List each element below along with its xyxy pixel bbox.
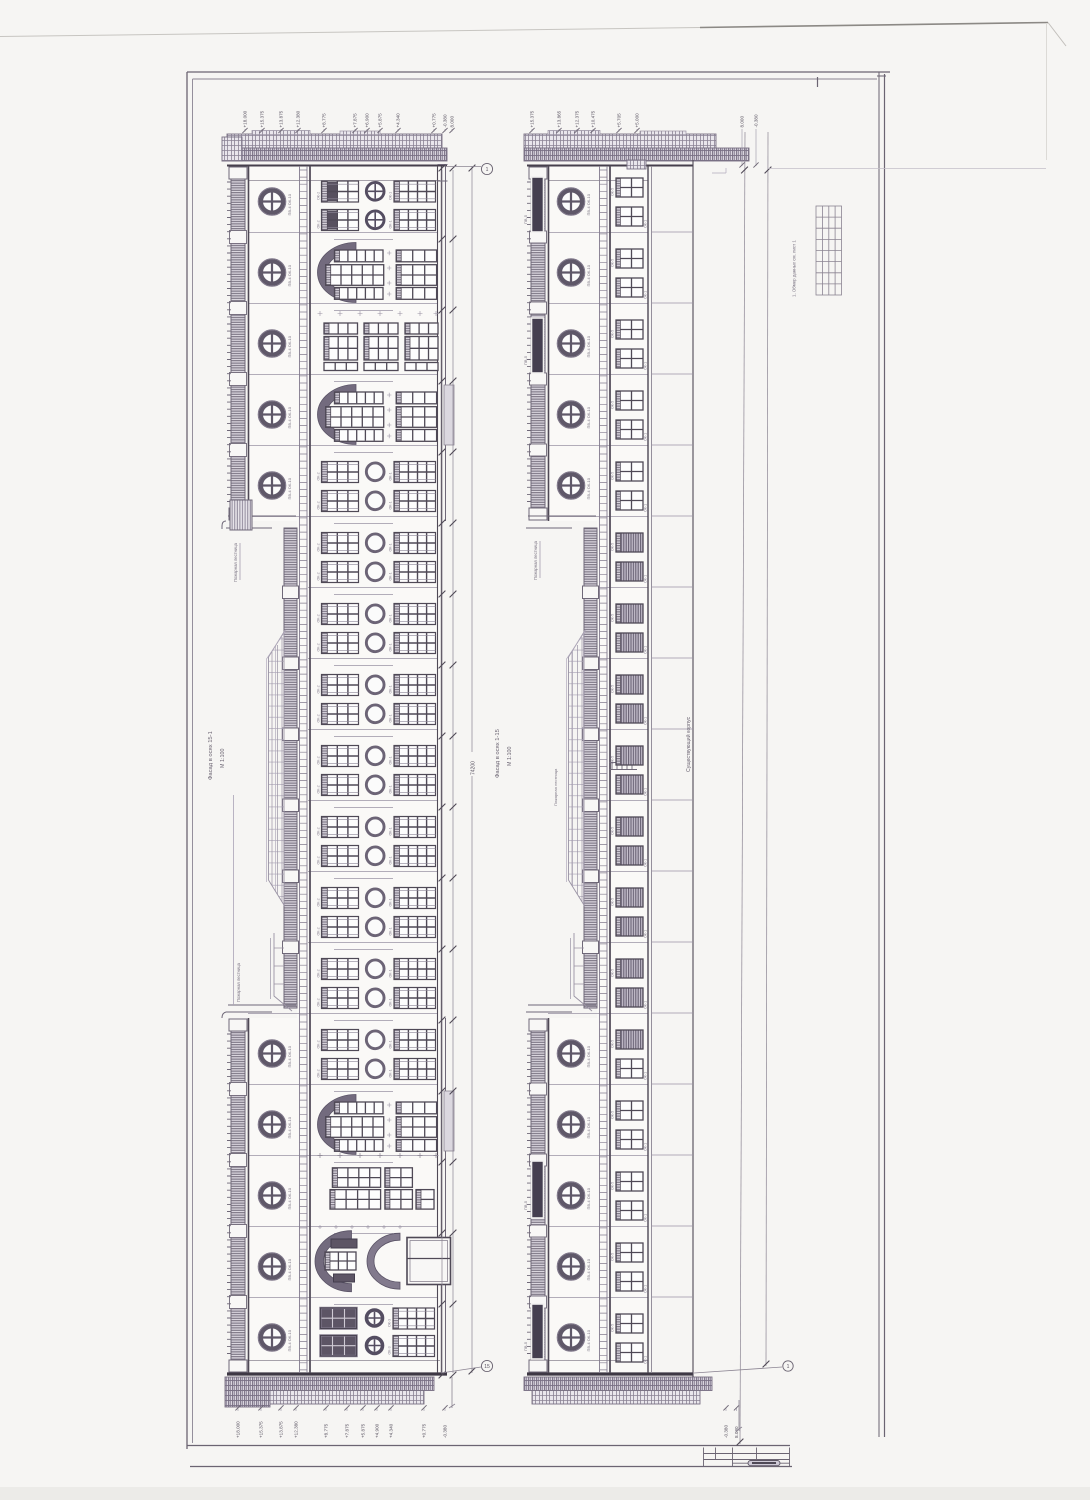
svg-text:ОК-5: ОК-5 (611, 401, 615, 409)
svg-text:М 1:100: М 1:100 (507, 747, 513, 766)
svg-text:ОК-2: ОК-2 (317, 1040, 321, 1048)
svg-text:8.000: 8.000 (450, 116, 455, 128)
svg-text:-0.380: -0.380 (443, 1425, 448, 1438)
svg-text:+5.000: +5.000 (635, 113, 640, 128)
svg-text:+12.375: +12.375 (575, 110, 580, 127)
svg-text:-0.380: -0.380 (443, 114, 448, 127)
svg-text:ОК-1: ОК-1 (389, 856, 393, 864)
svg-text:+13.865: +13.865 (557, 110, 562, 127)
svg-text:+4.340: +4.340 (389, 1423, 394, 1438)
svg-text:ОК-2: ОК-2 (317, 1069, 321, 1077)
svg-text:+5.875: +5.875 (361, 1423, 366, 1438)
svg-text:+4.340: +4.340 (396, 113, 401, 128)
svg-text:ОК-2: ОК-2 (317, 969, 321, 977)
svg-text:ОК-1: ОК-1 (389, 898, 393, 906)
svg-text:ОК-1: ОК-1 (644, 433, 648, 441)
svg-text:ОК-1: ОК-1 (389, 614, 393, 622)
svg-text:ОК-1: ОК-1 (389, 192, 393, 200)
svg-text:ОК-1: ОК-1 (644, 788, 648, 796)
svg-text:ОК-5: ОК-5 (611, 827, 615, 835)
svg-text:+13.875: +13.875 (279, 110, 284, 127)
svg-text:ОК-5: ОК-5 (611, 756, 615, 764)
svg-text:ОК-1: ОК-1 (644, 1143, 648, 1151)
svg-text:74200: 74200 (471, 761, 477, 775)
svg-text:ОК-2: ОК-2 (317, 643, 321, 651)
svg-text:Пожарная лестница: Пожарная лестница (236, 962, 241, 1002)
svg-text:ОК-3: ОК-3 (388, 1319, 392, 1327)
svg-text:ОК-1: ОК-1 (644, 1285, 648, 1293)
svg-text:ОК-1: ОК-1 (644, 930, 648, 938)
svg-text:ПВ-4 ОК-10: ПВ-4 ОК-10 (586, 406, 591, 428)
svg-text:ПВ-4 ОК-10: ПВ-4 ОК-10 (586, 1116, 591, 1138)
svg-text:ОК-1: ОК-1 (644, 504, 648, 512)
svg-text:ПВ-4 ОК-10: ПВ-4 ОК-10 (287, 406, 292, 428)
svg-text:+8.775: +8.775 (322, 113, 327, 128)
svg-text:ОК-2: ОК-2 (317, 998, 321, 1006)
svg-text:ПВ-4 ОК-10: ПВ-4 ОК-10 (287, 1258, 292, 1280)
svg-text:+0.775: +0.775 (432, 113, 437, 128)
svg-text:Фасад в осях 1-15: Фасад в осях 1-15 (495, 729, 501, 778)
svg-text:ПВ-4 ОК-10: ПВ-4 ОК-10 (287, 264, 292, 286)
svg-text:-0.380: -0.380 (754, 114, 759, 127)
svg-text:ПВ-5: ПВ-5 (523, 1200, 528, 1210)
svg-text:+5.875: +5.875 (378, 113, 383, 128)
svg-text:ОК-5: ОК-5 (611, 685, 615, 693)
svg-text:ОК-5: ОК-5 (611, 1040, 615, 1048)
svg-text:ОК-2: ОК-2 (317, 543, 321, 551)
svg-text:ОК-1: ОК-1 (644, 362, 648, 370)
svg-text:Фасад в осях 15-1: Фасад в осях 15-1 (208, 731, 214, 780)
svg-text:ОК-1: ОК-1 (644, 1214, 648, 1222)
svg-text:ОК-5: ОК-5 (611, 330, 615, 338)
svg-text:ПВ-5: ПВ-5 (523, 355, 528, 365)
svg-text:ОК-5: ОК-5 (611, 1182, 615, 1190)
svg-text:+8.775: +8.775 (324, 1423, 329, 1438)
svg-text:ПВ-4 ОК-10: ПВ-4 ОК-10 (287, 335, 292, 357)
svg-text:ОК-1: ОК-1 (644, 1001, 648, 1009)
svg-text:ПВ-4 ОК-10: ПВ-4 ОК-10 (586, 264, 591, 286)
svg-text:ОК-1: ОК-1 (644, 859, 648, 867)
svg-text:ОК-1: ОК-1 (389, 927, 393, 935)
svg-text:ОК-1: ОК-1 (389, 685, 393, 693)
svg-text:+7.875: +7.875 (345, 1423, 350, 1438)
svg-text:15: 15 (484, 1364, 490, 1370)
svg-text:ПВ-4 ОК-10: ПВ-4 ОК-10 (287, 1116, 292, 1138)
svg-text:ОК-1: ОК-1 (389, 969, 393, 977)
svg-text:+12.380: +12.380 (296, 110, 301, 127)
svg-text:ОК-1: ОК-1 (389, 714, 393, 722)
svg-text:ОК-1: ОК-1 (389, 998, 393, 1006)
svg-text:ОК-5: ОК-5 (611, 543, 615, 551)
svg-text:ОК-1: ОК-1 (644, 575, 648, 583)
svg-text:+13.875: +13.875 (279, 1421, 284, 1438)
svg-text:+10.475: +10.475 (591, 110, 596, 127)
svg-text:ОК-2: ОК-2 (317, 756, 321, 764)
svg-text:ОК-5: ОК-5 (611, 259, 615, 267)
svg-text:ОК-1: ОК-1 (389, 572, 393, 580)
svg-text:М 1:100: М 1:100 (220, 749, 226, 768)
svg-text:Пожарная лестница: Пожарная лестница (553, 768, 558, 806)
svg-text:ОК-1: ОК-1 (644, 291, 648, 299)
svg-text:ОК-1: ОК-1 (389, 472, 393, 480)
svg-text:ОК-1: ОК-1 (644, 1356, 648, 1364)
svg-text:ОК-2: ОК-2 (317, 192, 321, 200)
svg-text:+12.380: +12.380 (294, 1421, 299, 1438)
svg-text:ОК-1: ОК-1 (389, 827, 393, 835)
svg-text:+15.375: +15.375 (259, 1421, 264, 1438)
svg-text:ПВ-4 ОК-10: ПВ-4 ОК-10 (287, 1187, 292, 1209)
svg-text:ОК-2: ОК-2 (317, 856, 321, 864)
svg-text:ПВ-4 ОК-10: ПВ-4 ОК-10 (586, 1187, 591, 1209)
svg-text:ОК-1: ОК-1 (389, 220, 393, 228)
svg-text:+4.900: +4.900 (375, 1423, 380, 1438)
svg-text:ОК-1: ОК-1 (389, 543, 393, 551)
svg-text:ОК-2: ОК-2 (317, 501, 321, 509)
svg-text:ПВ-4 ОК-10: ПВ-4 ОК-10 (586, 193, 591, 215)
svg-text:ПВ-4 ОК-10: ПВ-4 ОК-10 (287, 1045, 292, 1067)
svg-text:ОК-2: ОК-2 (317, 685, 321, 693)
svg-text:ОК-2: ОК-2 (317, 714, 321, 722)
svg-text:ОК-5: ОК-5 (611, 188, 615, 196)
svg-text:1: 1 (486, 167, 489, 173)
svg-text:+18.000: +18.000 (243, 110, 248, 127)
svg-text:ОК-2: ОК-2 (317, 898, 321, 906)
svg-text:1: 1 (787, 1364, 790, 1370)
svg-text:ОК-1: ОК-1 (644, 220, 648, 228)
svg-text:ОК-1: ОК-1 (389, 643, 393, 651)
svg-text:ПВ-4 ОК-10: ПВ-4 ОК-10 (287, 1329, 292, 1351)
svg-text:+15.375: +15.375 (260, 110, 265, 127)
svg-text:ОК-1: ОК-1 (389, 756, 393, 764)
svg-text:8.000: 8.000 (734, 1426, 739, 1438)
svg-text:+6.900: +6.900 (365, 113, 370, 128)
svg-text:ОК-2: ОК-2 (317, 572, 321, 580)
svg-text:Пожарная лестница: Пожарная лестница (233, 542, 238, 582)
svg-text:ПВ-4 ОК-10: ПВ-4 ОК-10 (586, 477, 591, 499)
svg-text:ОК-1: ОК-1 (389, 1069, 393, 1077)
svg-text:ОК-1: ОК-1 (644, 646, 648, 654)
svg-text:ПВ-4 ОК-10: ПВ-4 ОК-10 (586, 1329, 591, 1351)
svg-text:ОК-5: ОК-5 (611, 1111, 615, 1119)
svg-text:ОК-5: ОК-5 (611, 969, 615, 977)
svg-text:ОК-1: ОК-1 (389, 501, 393, 509)
svg-text:ПВ-4 ОК-10: ПВ-4 ОК-10 (586, 335, 591, 357)
svg-text:ОК-5: ОК-5 (611, 898, 615, 906)
svg-text:Существующий корпус: Существующий корпус (685, 717, 692, 772)
svg-text:ОК-2: ОК-2 (317, 927, 321, 935)
svg-text:ПВ-4 ОК-10: ПВ-4 ОК-10 (586, 1258, 591, 1280)
svg-text:+7.875: +7.875 (353, 113, 358, 128)
svg-text:ОК-3: ОК-3 (388, 1346, 392, 1354)
svg-text:ОК-2: ОК-2 (317, 220, 321, 228)
svg-text:-0.380: -0.380 (724, 1425, 729, 1438)
svg-text:ОК-2: ОК-2 (317, 827, 321, 835)
svg-text:Пожарная лестница: Пожарная лестница (533, 540, 538, 580)
svg-text:ОК-5: ОК-5 (611, 1253, 615, 1261)
svg-text:+0.775: +0.775 (422, 1423, 427, 1438)
svg-text:ОК-1: ОК-1 (644, 1072, 648, 1080)
svg-text:1. Обмер данных см. лист 1: 1. Обмер данных см. лист 1 (792, 240, 797, 297)
svg-text:+18.000: +18.000 (236, 1421, 241, 1438)
svg-text:ОК-2: ОК-2 (317, 614, 321, 622)
svg-text:ОК-1: ОК-1 (644, 717, 648, 725)
svg-text:ОК-5: ОК-5 (611, 614, 615, 622)
svg-text:ОК-1: ОК-1 (389, 1040, 393, 1048)
svg-text:ПВ-4 ОК-10: ПВ-4 ОК-10 (287, 193, 292, 215)
svg-text:ПВ-5: ПВ-5 (523, 1341, 528, 1351)
svg-text:ОК-2: ОК-2 (317, 785, 321, 793)
svg-text:ПВ-5: ПВ-5 (523, 214, 528, 224)
svg-text:ОК-5: ОК-5 (611, 472, 615, 480)
svg-text:ОК-2: ОК-2 (317, 472, 321, 480)
svg-text:ПВ-4 ОК-10: ПВ-4 ОК-10 (287, 477, 292, 499)
svg-text:8.000: 8.000 (740, 116, 745, 128)
svg-text:+15.375: +15.375 (530, 110, 535, 127)
svg-text:ПВ-4 ОК-10: ПВ-4 ОК-10 (586, 1045, 591, 1067)
svg-text:ОК-1: ОК-1 (389, 785, 393, 793)
svg-text:+5.705: +5.705 (617, 113, 622, 128)
svg-text:ОК-5: ОК-5 (611, 1324, 615, 1332)
